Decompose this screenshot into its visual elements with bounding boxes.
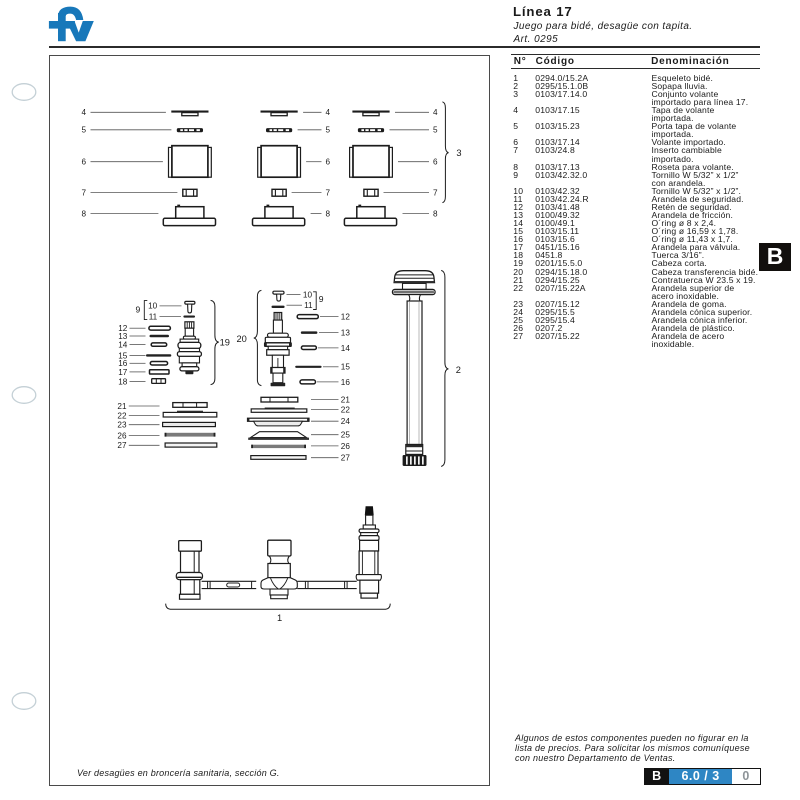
svg-text:8: 8 xyxy=(81,209,86,218)
svg-text:21: 21 xyxy=(117,402,127,411)
svg-text:3: 3 xyxy=(456,148,461,158)
svg-text:9: 9 xyxy=(319,294,324,304)
svg-text:22: 22 xyxy=(341,405,351,414)
svg-text:8: 8 xyxy=(326,209,331,218)
svg-text:6: 6 xyxy=(433,158,438,167)
svg-text:5: 5 xyxy=(433,126,438,135)
svg-text:6: 6 xyxy=(326,158,331,167)
svg-text:26: 26 xyxy=(341,442,351,451)
svg-text:2: 2 xyxy=(456,365,461,375)
svg-text:14: 14 xyxy=(118,341,128,350)
svg-text:10: 10 xyxy=(303,290,313,299)
svg-text:12: 12 xyxy=(341,313,351,322)
svg-text:17: 17 xyxy=(118,368,128,377)
svg-text:22: 22 xyxy=(117,412,127,421)
svg-text:9: 9 xyxy=(136,304,141,314)
svg-text:7: 7 xyxy=(433,189,438,198)
svg-text:4: 4 xyxy=(433,108,438,117)
svg-text:27: 27 xyxy=(117,441,127,450)
svg-text:8: 8 xyxy=(433,209,438,218)
svg-text:15: 15 xyxy=(341,363,351,372)
svg-text:10: 10 xyxy=(148,302,158,311)
svg-text:18: 18 xyxy=(118,377,128,386)
svg-text:19: 19 xyxy=(220,337,230,347)
svg-text:26: 26 xyxy=(117,432,127,441)
svg-text:27: 27 xyxy=(341,454,351,463)
svg-text:4: 4 xyxy=(81,108,86,117)
svg-text:13: 13 xyxy=(341,329,351,338)
svg-text:11: 11 xyxy=(304,301,313,310)
svg-text:25: 25 xyxy=(341,431,351,440)
svg-text:7: 7 xyxy=(81,189,86,198)
svg-text:23: 23 xyxy=(117,421,127,430)
svg-text:20: 20 xyxy=(236,334,246,344)
svg-text:14: 14 xyxy=(341,344,351,353)
svg-text:5: 5 xyxy=(326,126,331,135)
svg-text:6: 6 xyxy=(81,158,86,167)
svg-text:5: 5 xyxy=(81,126,86,135)
svg-text:21: 21 xyxy=(341,395,351,404)
svg-text:16: 16 xyxy=(341,378,351,387)
svg-text:4: 4 xyxy=(326,108,331,117)
svg-text:11: 11 xyxy=(149,313,158,322)
svg-text:7: 7 xyxy=(326,189,331,198)
svg-text:24: 24 xyxy=(341,417,351,426)
svg-text:1: 1 xyxy=(277,613,282,623)
